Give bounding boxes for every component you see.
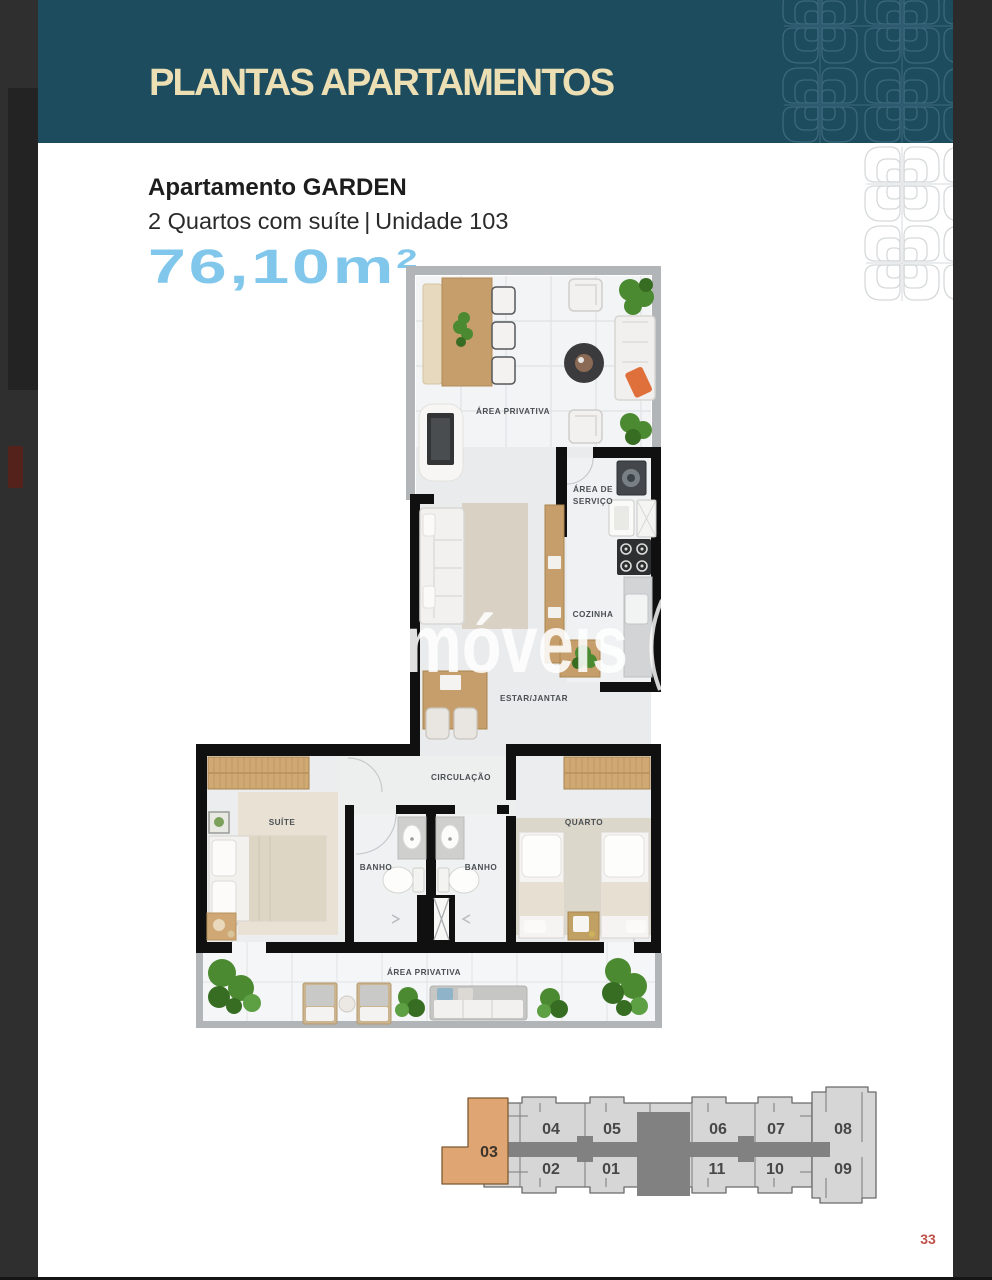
- svg-text:móveıs: móveıs: [404, 598, 628, 690]
- svg-text:05: 05: [603, 1121, 621, 1138]
- svg-text:09: 09: [834, 1161, 852, 1178]
- svg-text:BANHO: BANHO: [465, 863, 498, 872]
- svg-text:03: 03: [480, 1144, 498, 1161]
- svg-text:BANHO: BANHO: [360, 863, 393, 872]
- svg-text:01: 01: [602, 1161, 620, 1178]
- svg-text:ÁREA PRIVATIVA: ÁREA PRIVATIVA: [476, 406, 550, 416]
- svg-text:06: 06: [709, 1121, 727, 1138]
- svg-text:02: 02: [542, 1161, 560, 1178]
- svg-text:08: 08: [834, 1121, 852, 1138]
- svg-text:CIRCULAÇÃO: CIRCULAÇÃO: [431, 772, 491, 782]
- svg-text:SERVIÇO: SERVIÇO: [573, 497, 613, 506]
- svg-text:ÁREA PRIVATIVA: ÁREA PRIVATIVA: [387, 967, 461, 977]
- svg-text:QUARTO: QUARTO: [565, 818, 603, 827]
- svg-text:07: 07: [767, 1121, 785, 1138]
- svg-text:ESTAR/JANTAR: ESTAR/JANTAR: [500, 694, 568, 703]
- svg-text:10: 10: [766, 1161, 784, 1178]
- svg-text:11: 11: [709, 1161, 726, 1178]
- svg-text:SUÍTE: SUÍTE: [269, 817, 296, 827]
- svg-text:04: 04: [542, 1121, 560, 1138]
- svg-text:ÁREA DE: ÁREA DE: [573, 484, 613, 494]
